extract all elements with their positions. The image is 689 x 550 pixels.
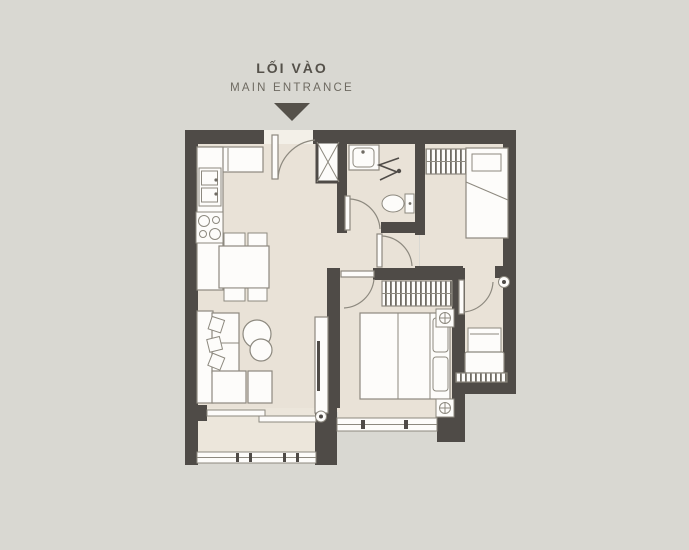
sofa-pillow [207,336,223,352]
technical-shaft [317,142,339,182]
dining-chair [224,233,245,246]
kitchen-sink [199,168,221,206]
armchair [465,328,504,373]
dining-chair [248,288,267,301]
railing-post [236,453,239,462]
wall-living-master-divider [327,268,340,408]
cooktop [196,212,223,243]
wall-master-top [373,268,452,280]
toilet [382,194,414,213]
single-bed [466,148,508,238]
entrance-door-leaf [272,135,278,179]
fixture-marker-dot [319,415,323,419]
faucet-dot [361,150,364,153]
flush-dot [409,202,412,205]
single-bed-pillow [472,154,501,171]
floor-plan-svg [0,0,689,550]
tv-cabinet [315,317,328,413]
window-mullion [361,420,365,429]
fixture-marker-dot [502,280,506,284]
sliding-panel [259,416,316,422]
balcony-railing [197,452,316,463]
bedroom2-door-leaf [377,234,382,267]
floor-plan-canvas: LỐI VÀO MAIN ENTRANCE [0,0,689,550]
sofa-ottoman [248,371,272,403]
coffee-table-small [250,339,272,361]
nightstand-top [436,309,454,327]
sofa-chaise [212,371,246,403]
sink-basin-top [202,171,218,185]
wall-bathroom-bottom-right [381,222,420,233]
armchair-seat [465,352,504,373]
dining-chair [248,233,267,246]
sliding-panel [207,410,265,416]
dining-table [219,246,269,288]
window-mullion [404,420,408,429]
wall-top-left [185,130,264,144]
railing-post [283,453,286,462]
nightstand-bottom [436,399,454,417]
small-room-door-leaf [459,280,464,314]
dining-set [219,233,269,301]
tv-cabinet-body [315,317,328,413]
sink-tap-dot [214,178,217,181]
dining-chair [224,288,245,301]
wall-bath-bedroom2-divider [415,130,425,235]
bed-pillow [433,357,448,391]
sink-drain-dot [214,192,217,195]
armchair-back [468,328,501,354]
master-door-leaf [341,271,374,277]
wall-sliding-door-left-stub [185,405,207,421]
master-window [337,418,437,431]
bathroom-door-leaf [345,196,350,230]
toilet-bowl [382,195,404,212]
railing-post [296,453,299,462]
shower-drain-dot [397,169,401,173]
bathroom-sink [349,145,379,170]
ac-louver-ledge [456,373,507,382]
tv-icon [317,341,320,391]
railing-post [249,453,252,462]
